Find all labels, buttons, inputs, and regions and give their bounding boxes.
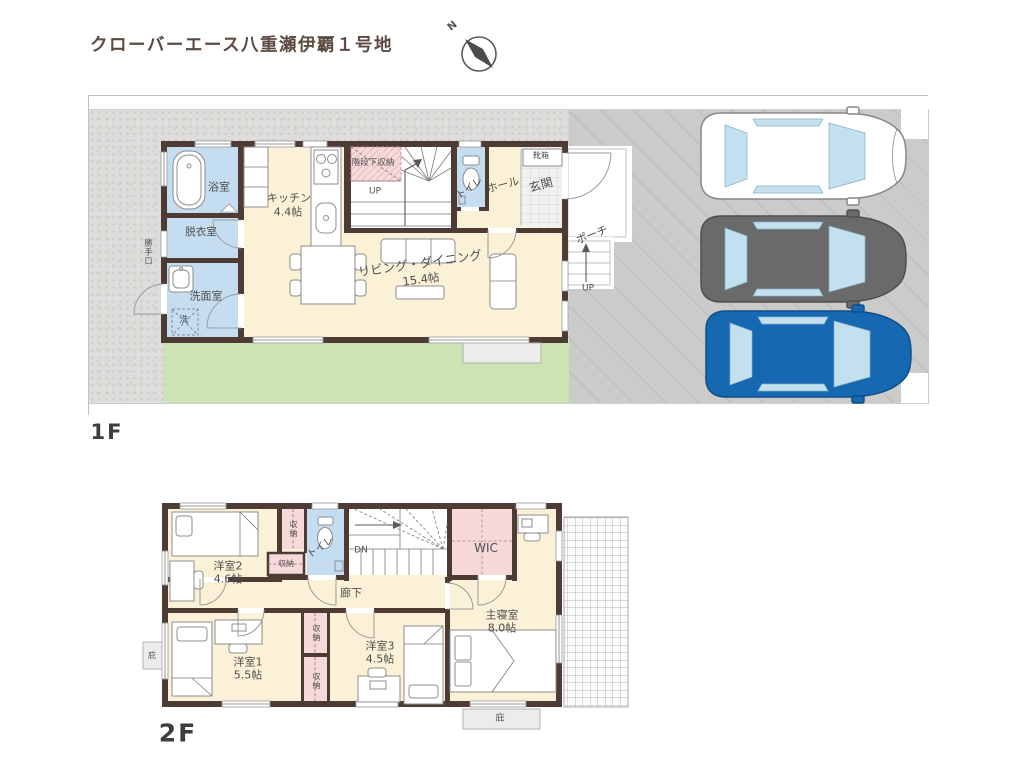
bed-master bbox=[450, 630, 556, 692]
site-plan-1f bbox=[88, 95, 928, 415]
label-shoe-box: 靴箱 bbox=[533, 152, 549, 160]
label-master: 主寝室 bbox=[486, 610, 519, 621]
label-washroom: 洗面室 bbox=[190, 291, 223, 302]
label-room3: 洋室3 bbox=[366, 641, 395, 652]
floorplan-page: クローバーエース八重瀬伊覇１号地 N bbox=[0, 0, 1024, 768]
label-closet-c: 収納 bbox=[312, 624, 320, 642]
label-eaves-bottom: 庇 bbox=[495, 715, 504, 724]
label-master-size: 8.0帖 bbox=[488, 623, 517, 634]
car-blue bbox=[706, 305, 911, 403]
label-porch-up: UP bbox=[582, 285, 594, 294]
label-room2-size: 4.6帖 bbox=[214, 574, 243, 585]
label-kitchen-size: 4.4帖 bbox=[274, 207, 303, 218]
bathtub-icon bbox=[173, 151, 205, 209]
page-title: クローバーエース八重瀬伊覇１号地 bbox=[90, 32, 393, 57]
plan-2f bbox=[140, 495, 650, 760]
bed-room3 bbox=[404, 626, 443, 704]
porch bbox=[566, 146, 632, 289]
floor-label-1f: 1F bbox=[91, 420, 124, 444]
bed-room1 bbox=[172, 622, 212, 696]
car-gray bbox=[701, 210, 906, 308]
label-stairs-up-1f: UP bbox=[369, 188, 381, 197]
dining-table bbox=[290, 246, 366, 304]
label-room1-size: 5.5帖 bbox=[234, 670, 263, 681]
label-back-door: 勝手口 bbox=[144, 239, 152, 266]
label-room3-size: 4.5帖 bbox=[366, 654, 395, 665]
label-room2: 洋室2 bbox=[214, 561, 243, 572]
dressing-room-area bbox=[167, 218, 238, 258]
label-room1: 洋室1 bbox=[234, 657, 263, 668]
label-closet-a: 収納 bbox=[289, 520, 297, 538]
washbasin-icon bbox=[169, 266, 193, 292]
floor-label-2f: 2F bbox=[159, 719, 197, 748]
label-corridor: 廊下 bbox=[340, 588, 362, 599]
label-closet-d: 収納 bbox=[312, 672, 320, 690]
house-2f-drawing bbox=[140, 495, 650, 760]
label-kitchen: キッチン bbox=[267, 193, 311, 204]
house-1f-drawing bbox=[89, 96, 927, 414]
balcony bbox=[564, 517, 628, 707]
label-stairs-down: DN bbox=[354, 547, 368, 556]
label-wic: WIC bbox=[474, 542, 498, 554]
label-bath: 浴室 bbox=[208, 182, 230, 193]
label-closet-b: 収納 bbox=[278, 560, 294, 568]
car-white bbox=[701, 107, 906, 205]
label-eaves-left: 庇 bbox=[148, 652, 156, 660]
terrace-step bbox=[463, 343, 541, 363]
label-dressing: 脱衣室 bbox=[185, 227, 217, 238]
label-laundry: 洗 bbox=[179, 317, 188, 326]
bed-room2 bbox=[172, 512, 258, 556]
label-under-stair-storage: 階段下収納 bbox=[352, 159, 395, 168]
compass-icon: N bbox=[446, 18, 508, 82]
